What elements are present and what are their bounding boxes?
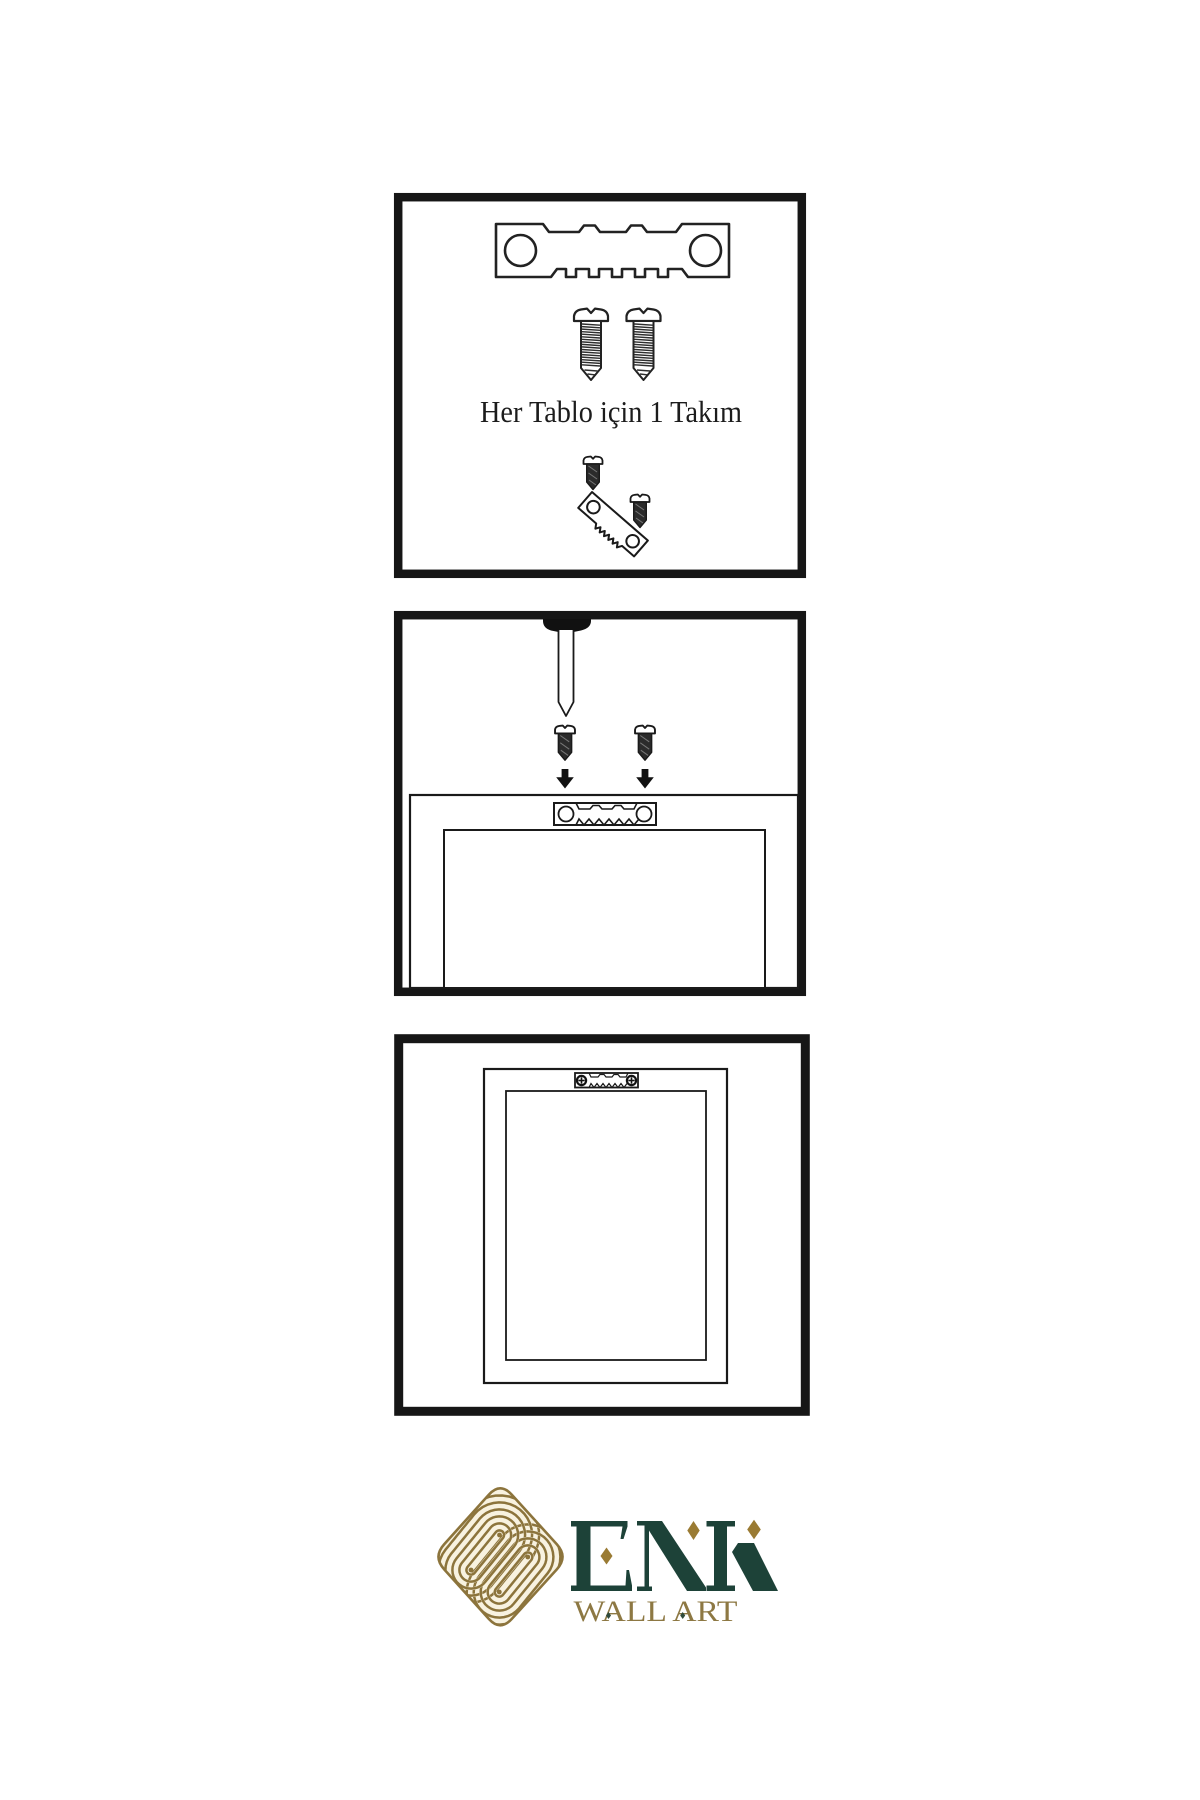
svg-text:WALL ART: WALL ART [574,1595,738,1628]
svg-text:Her Tablo için 1 Takım: Her Tablo için 1 Takım [480,394,742,429]
